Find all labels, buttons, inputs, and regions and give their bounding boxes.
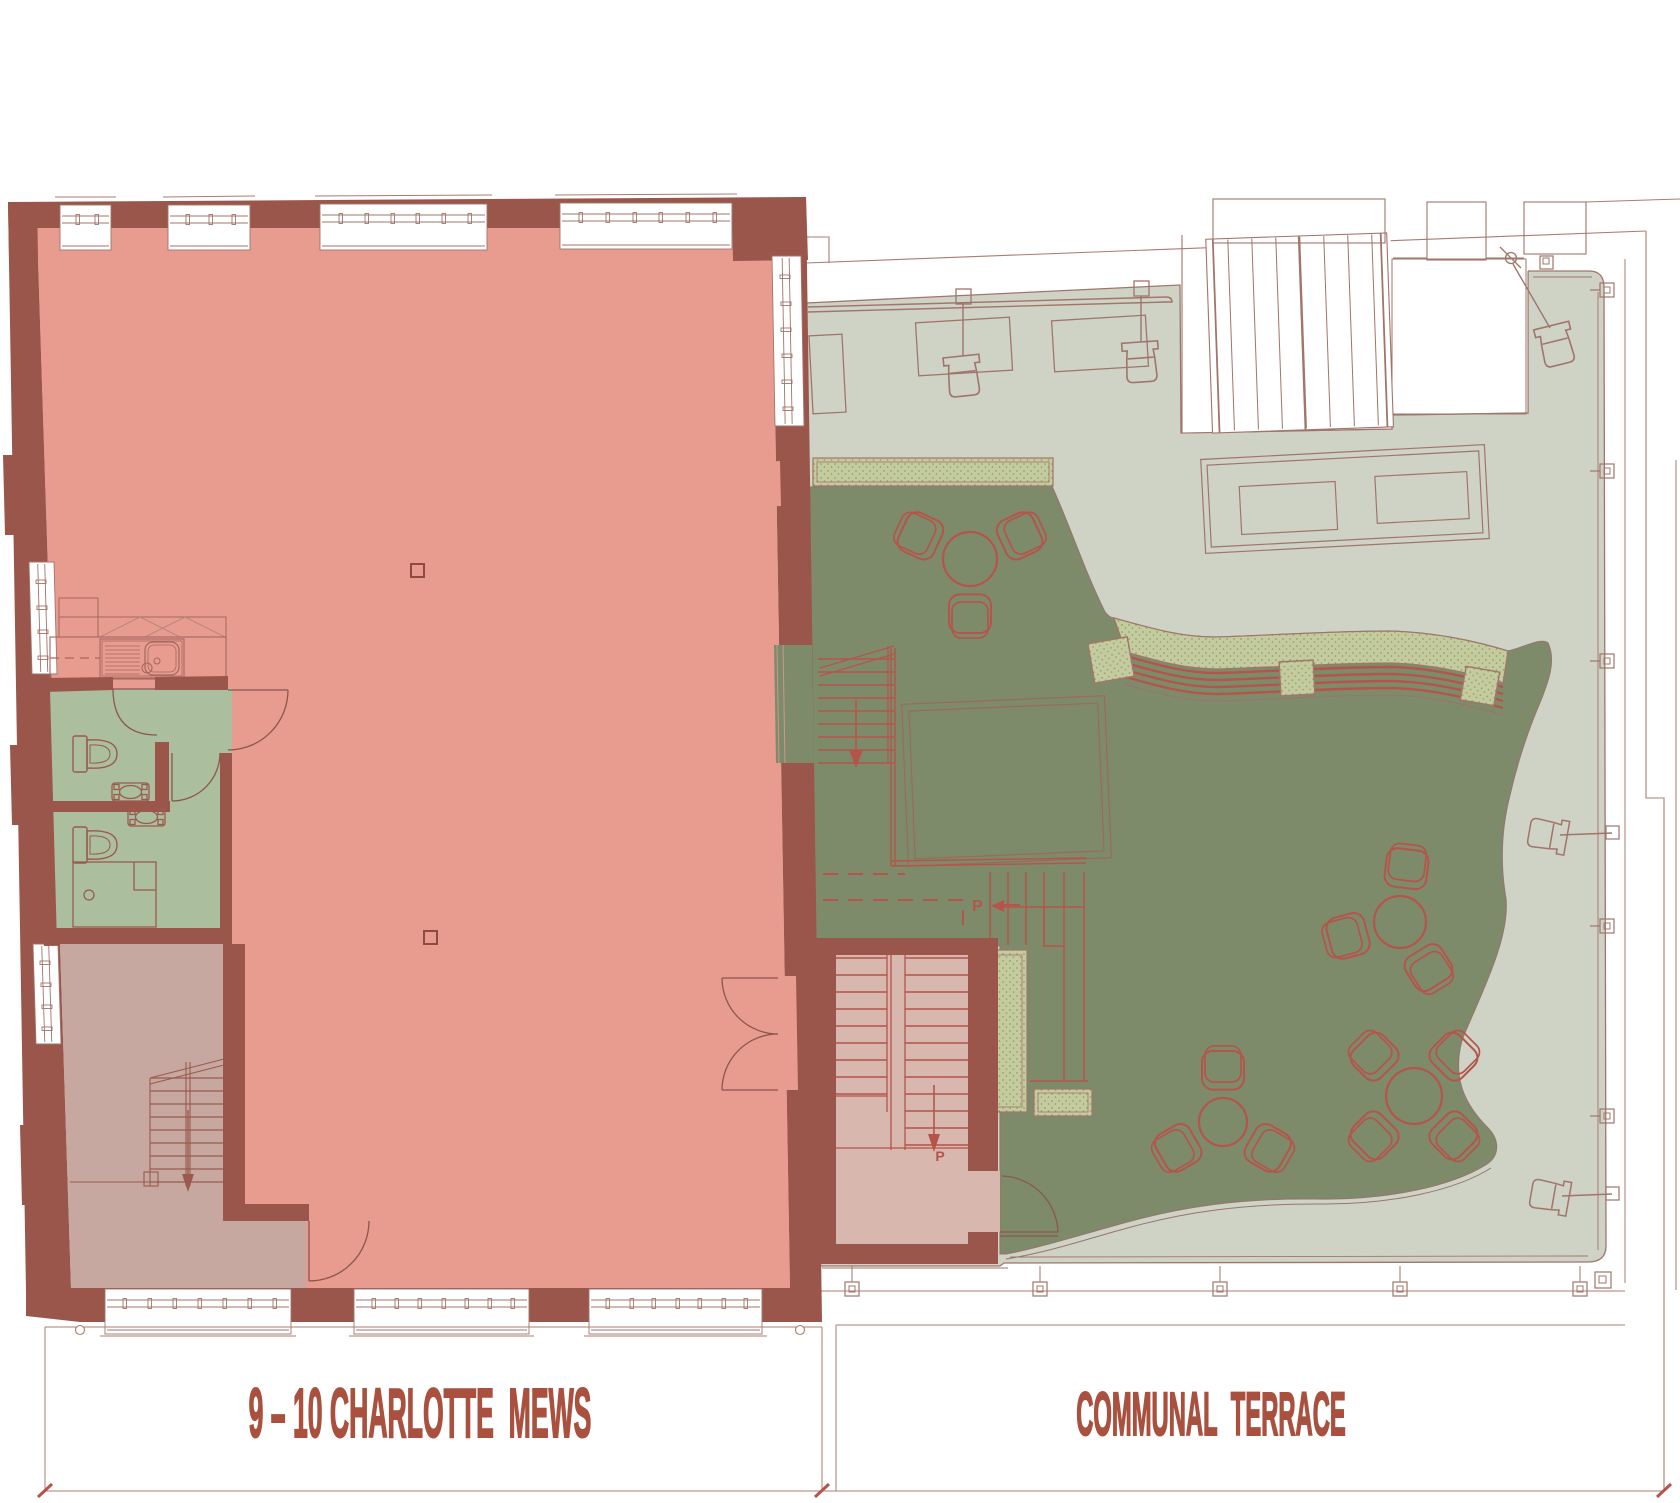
svg-text:9 – 10 CHARLOTTE MEWS: 9 – 10 CHARLOTTE MEWS [249,1375,592,1453]
svg-text:P: P [935,1148,944,1164]
svg-text:COMMUNAL TERRACE: COMMUNAL TERRACE [1076,1380,1346,1449]
svg-text:P: P [972,898,983,915]
